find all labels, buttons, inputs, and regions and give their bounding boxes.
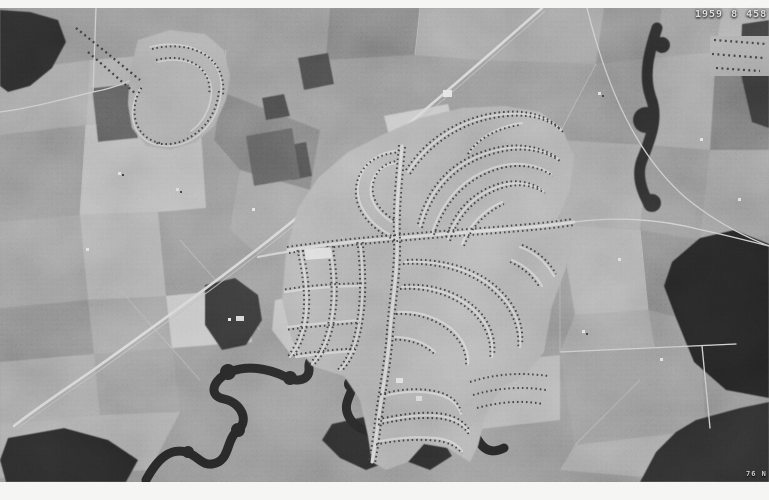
stamp-code: 8: [731, 9, 738, 20]
aerial-photo-sheet: 1959 8 458 76 N: [0, 0, 769, 500]
stamp-frame: 458: [746, 9, 767, 20]
aerial-photo-canvas: [0, 0, 769, 500]
corner-mark: 76 N: [746, 470, 767, 478]
photo-stamp: 1959 8 458: [695, 9, 767, 20]
stamp-year: 1959: [695, 9, 723, 20]
film-grain: [0, 8, 769, 482]
grain-overlay: [0, 8, 769, 482]
